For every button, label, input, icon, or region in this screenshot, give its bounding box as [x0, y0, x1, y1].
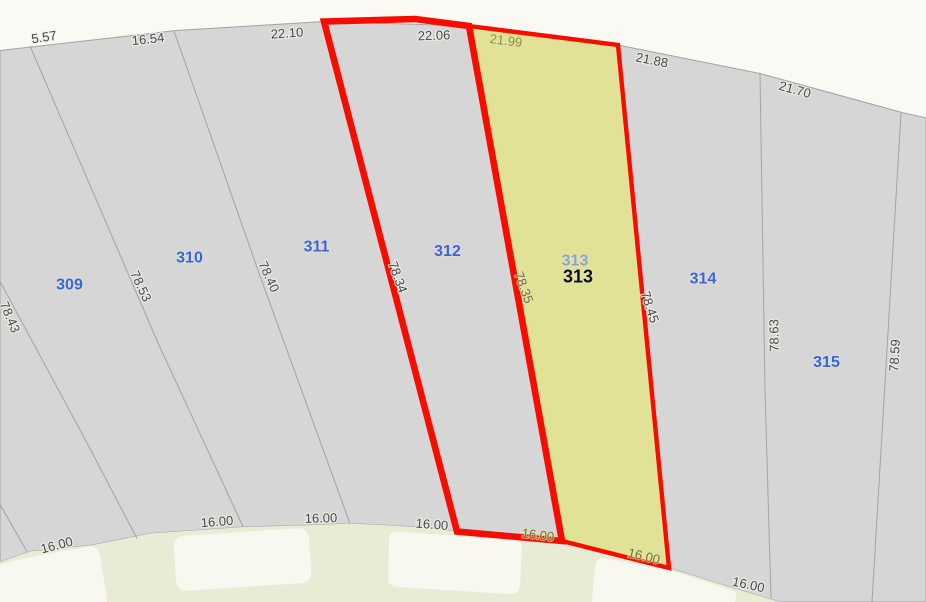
svg-text:78.59: 78.59	[886, 339, 903, 372]
svg-text:16.00: 16.00	[200, 513, 234, 531]
svg-text:314: 314	[690, 271, 717, 288]
svg-text:78.63: 78.63	[766, 319, 781, 352]
svg-text:22.10: 22.10	[270, 24, 303, 41]
svg-text:310: 310	[176, 250, 203, 267]
svg-text:311: 311	[304, 239, 330, 256]
svg-text:22.06: 22.06	[417, 27, 450, 43]
svg-text:16.00: 16.00	[305, 510, 338, 526]
svg-text:312: 312	[434, 243, 461, 260]
svg-text:313: 313	[563, 267, 593, 287]
svg-text:16.00: 16.00	[415, 516, 449, 534]
svg-text:315: 315	[813, 354, 840, 371]
svg-text:309: 309	[56, 277, 83, 294]
